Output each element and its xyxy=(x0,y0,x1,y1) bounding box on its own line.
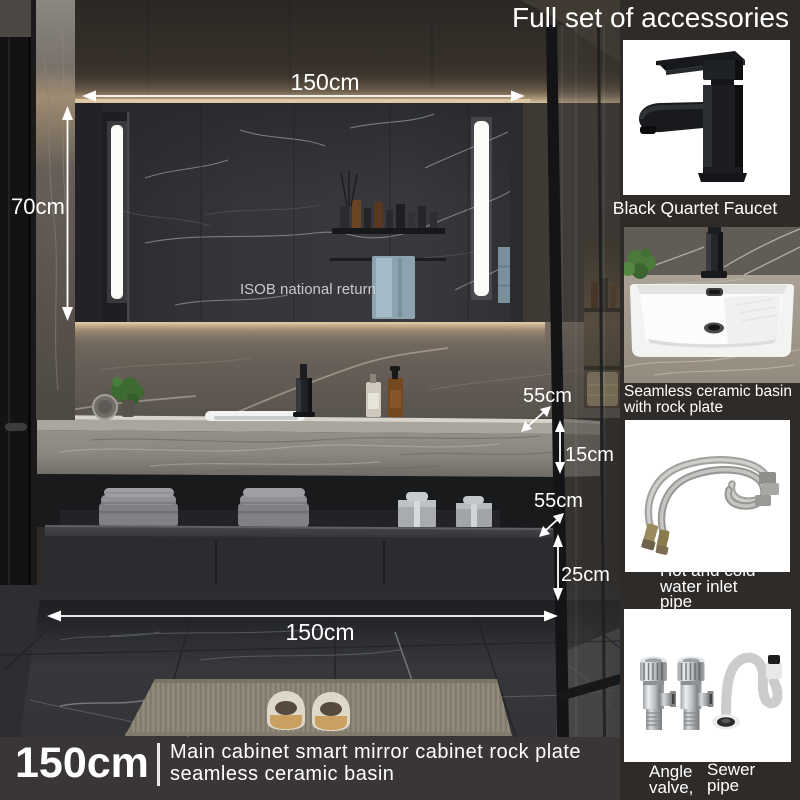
svg-text:150cm: 150cm xyxy=(285,619,354,645)
svg-text:150cm: 150cm xyxy=(290,69,359,95)
svg-text:15cm: 15cm xyxy=(565,444,614,466)
svg-text:55cm: 55cm xyxy=(523,385,572,407)
svg-text:55cm: 55cm xyxy=(534,490,583,512)
svg-text:70cm: 70cm xyxy=(11,194,65,219)
svg-text:25cm: 25cm xyxy=(561,564,610,586)
svg-text:ISOB national return: ISOB national return xyxy=(240,281,376,298)
